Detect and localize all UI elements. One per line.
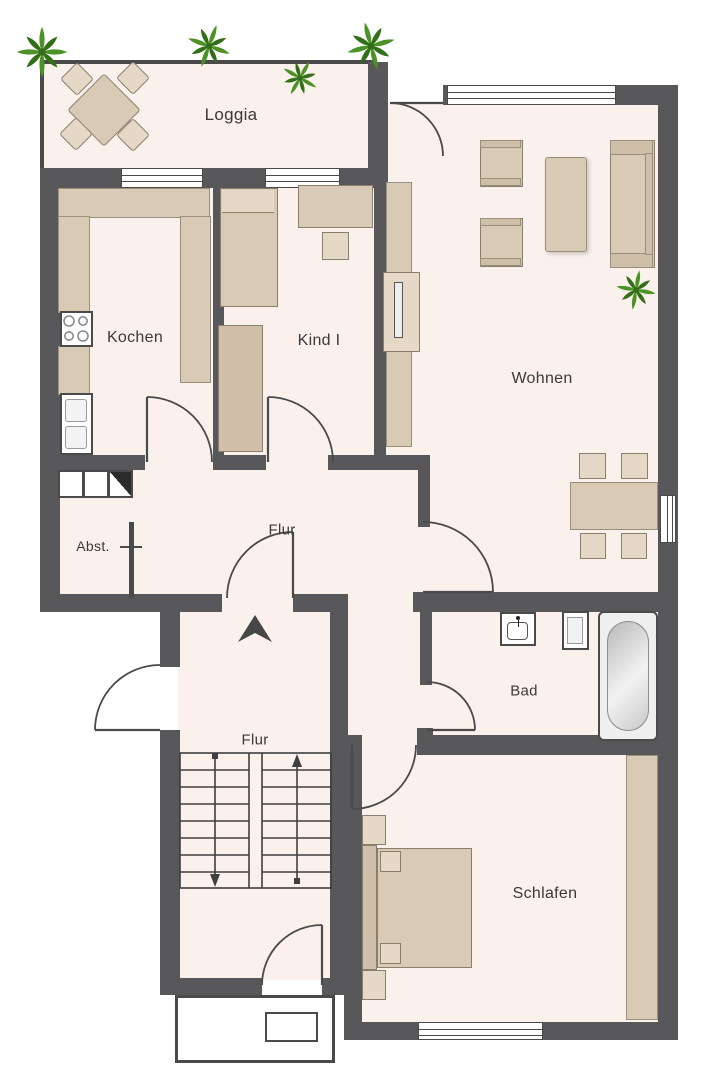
door-stairwell-west xyxy=(95,665,160,730)
coffee-table xyxy=(545,157,587,252)
kitchen-counter xyxy=(58,188,210,218)
chimney-shaft-cell xyxy=(108,470,133,498)
bathroom-sink xyxy=(562,611,589,650)
armrest xyxy=(480,140,521,148)
room-label-bathroom: Bad xyxy=(510,683,538,700)
armchair xyxy=(480,218,523,267)
armchair xyxy=(480,140,523,187)
child-wardrobe xyxy=(218,325,263,452)
room-label-bedroom: Schlafen xyxy=(513,885,578,903)
bed-headboard xyxy=(362,845,377,970)
chimney-cell xyxy=(83,470,109,498)
wall xyxy=(160,612,180,667)
wall xyxy=(293,594,348,612)
stove-burners xyxy=(62,313,91,345)
chimney-cell xyxy=(58,470,84,498)
wall xyxy=(58,455,145,470)
dining-chair xyxy=(580,533,606,559)
loggia-edge-top xyxy=(40,60,374,64)
stove xyxy=(60,311,93,347)
pillow xyxy=(380,943,401,964)
kitchen-sink xyxy=(60,393,93,455)
sofa-backrest xyxy=(645,153,653,255)
bedroom-window xyxy=(418,1022,543,1040)
wall xyxy=(160,978,262,995)
sink-basin xyxy=(567,617,583,644)
living-room-window-right xyxy=(660,495,676,543)
wall xyxy=(213,455,266,470)
doormat xyxy=(265,1012,318,1042)
dining-table xyxy=(570,482,658,530)
armrest xyxy=(480,218,521,226)
armrest xyxy=(480,258,521,266)
pillow xyxy=(380,851,401,872)
kitchen-counter xyxy=(58,346,90,395)
room-label-kitchen: Kochen xyxy=(107,329,163,347)
dining-chair xyxy=(579,453,606,479)
nightstand xyxy=(362,815,386,845)
kitchen-window xyxy=(121,168,203,188)
kitchen-counter xyxy=(180,216,211,383)
floor-plan: Loggia Kochen Kind I Wohnen Flur Abst. F… xyxy=(0,0,707,1080)
nightstand xyxy=(362,970,386,1000)
wall xyxy=(40,168,60,612)
wall xyxy=(420,612,432,685)
desk-chair xyxy=(322,232,349,260)
room-label-hall-upper: Flur xyxy=(268,522,295,539)
sink-basin xyxy=(65,399,87,422)
wall xyxy=(368,62,388,188)
child-bed xyxy=(220,188,278,307)
dining-chair xyxy=(621,453,648,479)
room-label-living-room: Wohnen xyxy=(511,370,572,388)
tv-screen xyxy=(394,282,403,338)
storage-partition xyxy=(129,522,134,598)
desk xyxy=(298,185,373,228)
toilet-flush-line xyxy=(518,620,520,627)
room-label-hall-lower: Flur xyxy=(241,732,268,749)
bathtub-basin xyxy=(607,621,649,731)
bedroom-wardrobe xyxy=(626,755,658,1020)
loggia-edge-left xyxy=(40,60,44,170)
bathtub xyxy=(598,611,658,741)
kitchen-counter xyxy=(58,216,90,313)
wall xyxy=(413,592,658,612)
living-room-window-top xyxy=(447,85,616,105)
tv-board xyxy=(383,272,420,352)
room-label-storage: Abst. xyxy=(76,538,109,554)
sofa-armrest xyxy=(610,253,653,268)
room-label-loggia: Loggia xyxy=(205,105,258,125)
wall xyxy=(418,470,430,527)
double-bed xyxy=(377,848,472,968)
wall xyxy=(160,730,180,995)
sofa xyxy=(610,140,655,268)
room-label-child-room: Kind I xyxy=(298,332,341,350)
stair-hall-floor xyxy=(178,610,332,980)
toilet xyxy=(500,612,536,646)
wall xyxy=(658,85,678,1040)
dining-chair xyxy=(621,533,647,559)
wall xyxy=(322,978,348,995)
child-bed-pillow xyxy=(222,190,274,213)
armrest xyxy=(480,178,521,186)
sink-basin xyxy=(65,426,87,449)
